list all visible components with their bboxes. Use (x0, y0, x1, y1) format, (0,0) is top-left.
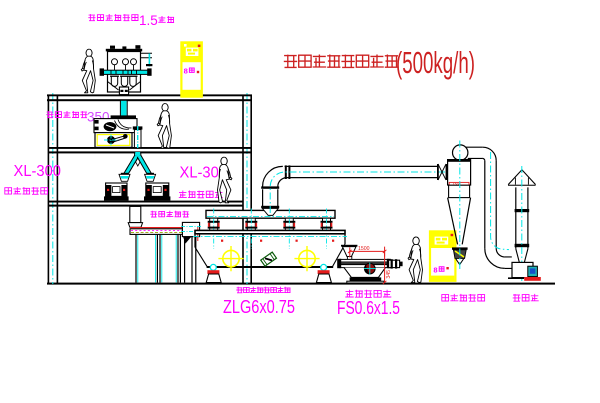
svg-text:ZLG6x0.75: ZLG6x0.75 (223, 297, 295, 317)
svg-text:8: 8 (184, 67, 188, 76)
svg-text:1.5: 1.5 (139, 13, 158, 28)
svg-text:345: 345 (386, 270, 392, 279)
svg-text:(500kg/h): (500kg/h) (396, 45, 475, 80)
svg-text:XL-300: XL-300 (14, 163, 62, 180)
svg-text:FS0.6x1.5: FS0.6x1.5 (337, 298, 400, 318)
svg-text:8: 8 (433, 265, 437, 274)
svg-text:1500: 1500 (358, 246, 370, 252)
